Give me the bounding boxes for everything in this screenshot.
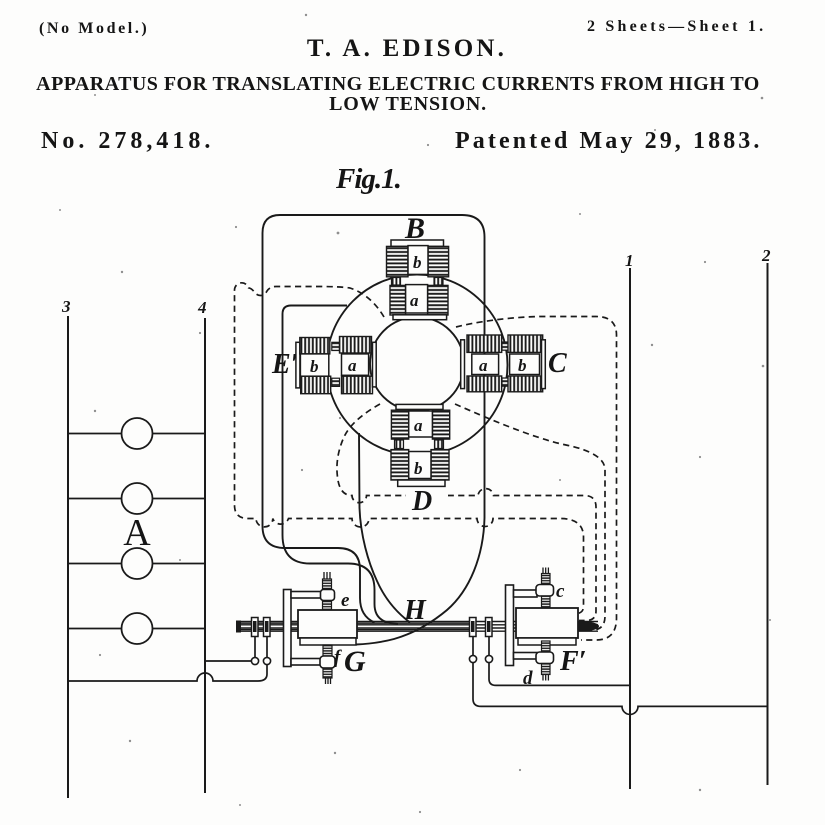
svg-text:e: e (341, 590, 350, 611)
svg-text:No. 278,418.: No. 278,418. (41, 128, 214, 154)
svg-text:E′: E′ (271, 349, 299, 380)
svg-text:Patented May 29, 1883.: Patented May 29, 1883. (455, 128, 763, 154)
svg-text:APPARATUS FOR TRANSLATING ELEC: APPARATUS FOR TRANSLATING ELECTRIC CURRE… (36, 73, 760, 95)
svg-text:2: 2 (761, 246, 771, 265)
svg-text:Fig.1.: Fig.1. (335, 163, 401, 195)
svg-text:(No Model.): (No Model.) (39, 20, 149, 37)
svg-text:A: A (123, 512, 151, 554)
svg-text:3: 3 (61, 297, 71, 316)
svg-text:2 Sheets—Sheet 1.: 2 Sheets—Sheet 1. (587, 18, 766, 35)
svg-text:C: C (548, 348, 567, 379)
svg-text:b: b (414, 459, 423, 478)
svg-text:G: G (344, 645, 366, 678)
svg-text:LOW TENSION.: LOW TENSION. (329, 93, 487, 115)
svg-text:T. A. EDISON.: T. A. EDISON. (307, 35, 507, 62)
svg-text:b: b (413, 253, 422, 272)
svg-text:b: b (518, 356, 527, 375)
svg-text:F′: F′ (559, 646, 587, 677)
svg-text:D: D (411, 486, 432, 517)
svg-text:c: c (556, 581, 565, 602)
svg-text:1: 1 (625, 251, 634, 270)
svg-text:a: a (410, 291, 419, 310)
svg-text:H: H (403, 595, 427, 626)
svg-text:a: a (479, 356, 488, 375)
svg-text:a: a (414, 416, 423, 435)
svg-text:4: 4 (197, 298, 207, 317)
svg-text:b: b (310, 357, 319, 376)
svg-text:a: a (348, 356, 357, 375)
